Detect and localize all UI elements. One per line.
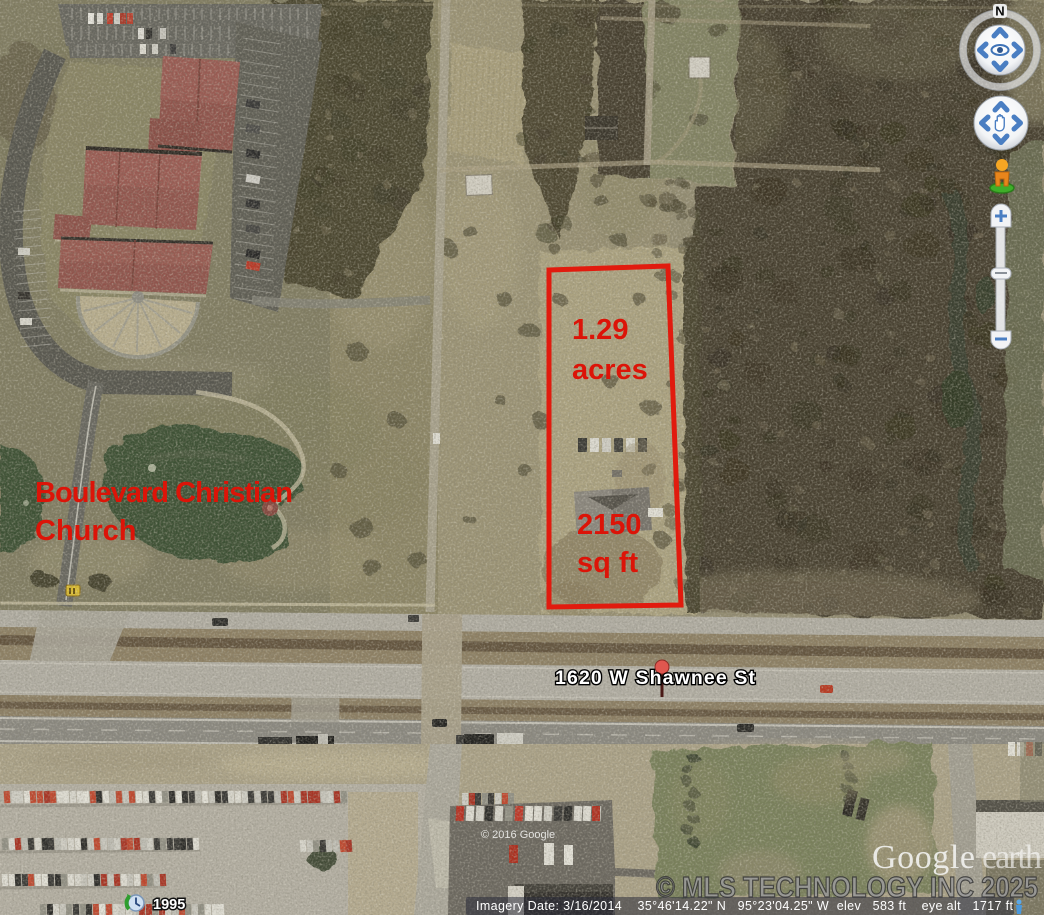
svg-text:earth: earth — [982, 839, 1042, 876]
svg-text:N: N — [995, 4, 1004, 19]
svg-text:acres: acres — [572, 354, 648, 386]
svg-text:2150: 2150 — [577, 509, 642, 541]
svg-text:sq ft: sq ft — [577, 547, 639, 579]
svg-text:Boulevard Christian: Boulevard Christian — [35, 477, 293, 509]
svg-text:Google: Google — [872, 839, 975, 876]
svg-text:Church: Church — [35, 515, 137, 547]
svg-text:© 2016 Google: © 2016 Google — [481, 829, 555, 841]
svg-text:1620 W Shawnee St: 1620 W Shawnee St — [555, 667, 756, 689]
svg-text:1995: 1995 — [153, 897, 185, 913]
svg-text:1.29: 1.29 — [572, 314, 628, 346]
svg-text:Imagery Date: 3/16/2014 35°: Imagery Date: 3/16/2014 35°46'14.22" N 9… — [476, 899, 1014, 913]
